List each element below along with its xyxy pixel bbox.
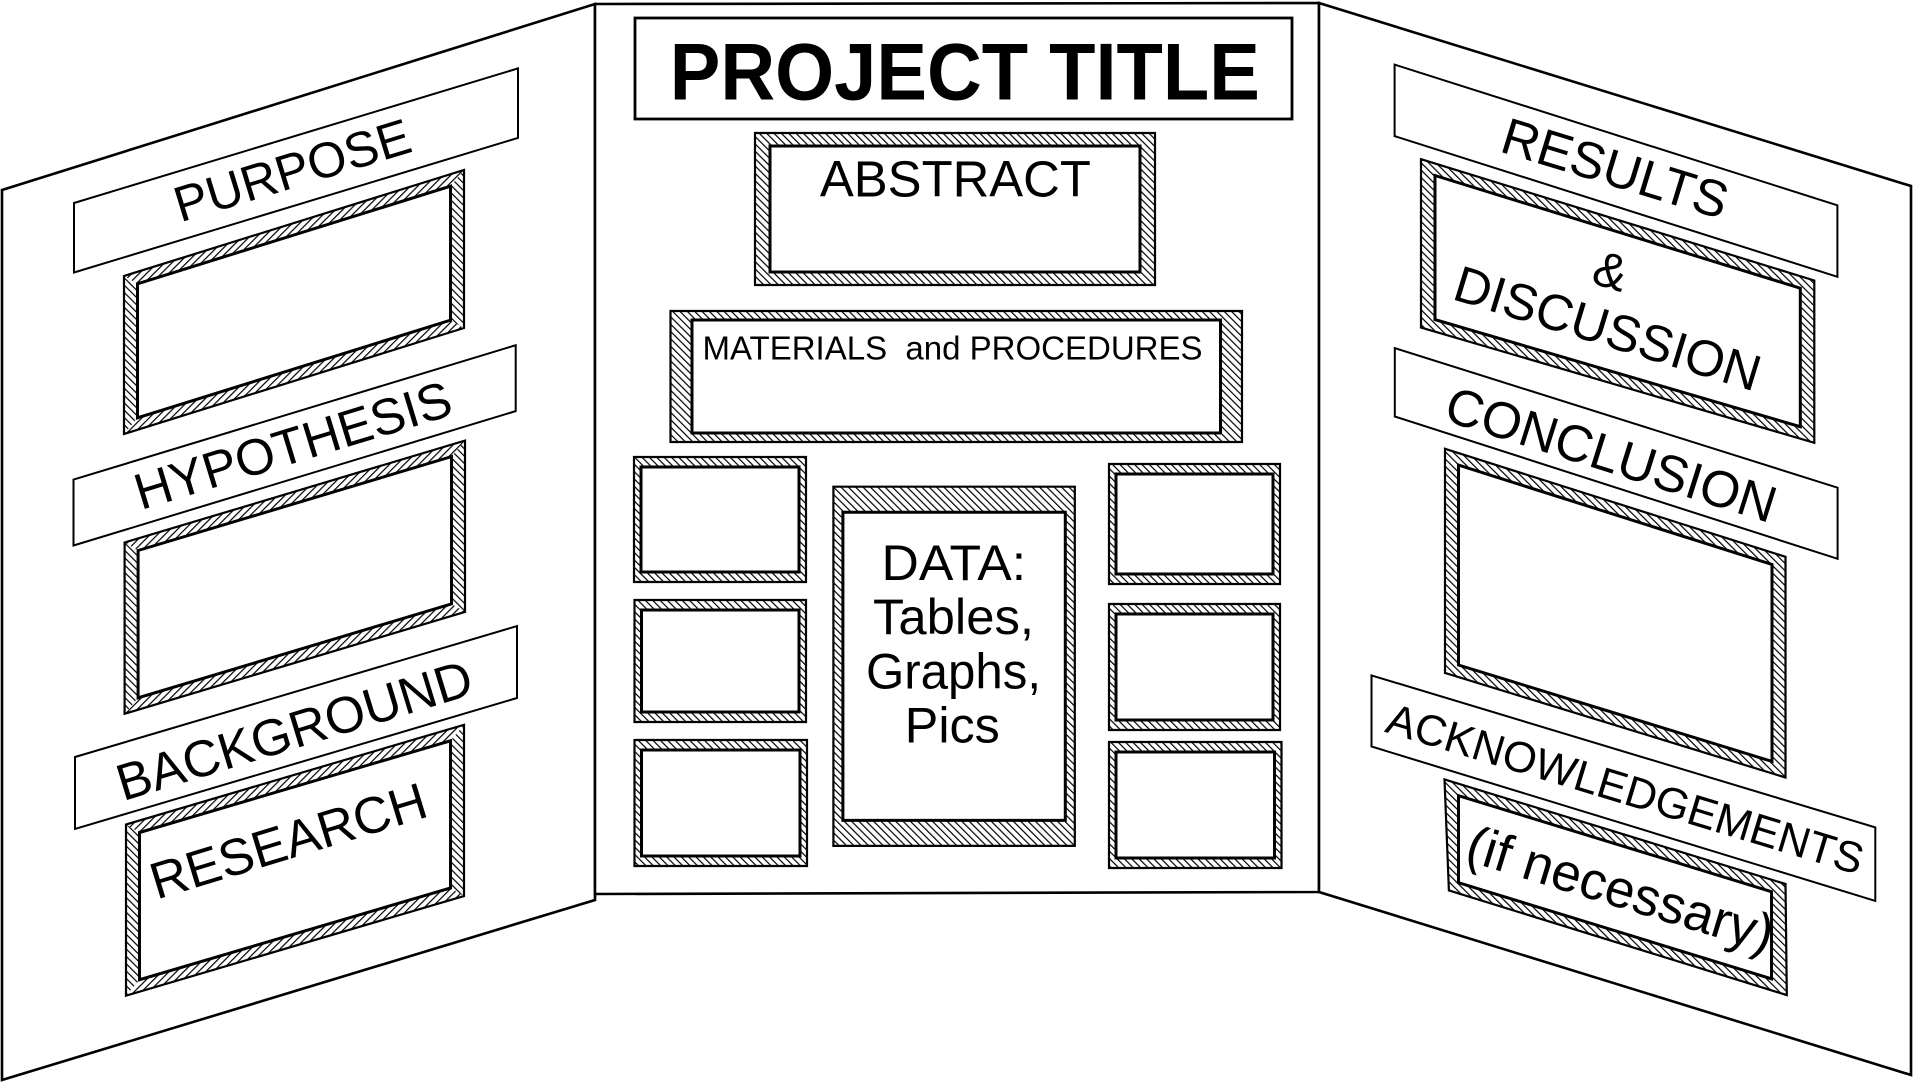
svg-text:ABSTRACT: ABSTRACT <box>820 150 1091 207</box>
svg-text:Pics: Pics <box>905 697 1000 754</box>
svg-text:MATERIALS and PROCEDURES: MATERIALS and PROCEDURES <box>702 329 1202 366</box>
svg-text:DATA:: DATA: <box>882 534 1027 591</box>
svg-text:Graphs,: Graphs, <box>866 642 1041 699</box>
svg-text:PROJECT TITLE: PROJECT TITLE <box>670 27 1260 117</box>
svg-text:Tables,: Tables, <box>873 588 1034 645</box>
